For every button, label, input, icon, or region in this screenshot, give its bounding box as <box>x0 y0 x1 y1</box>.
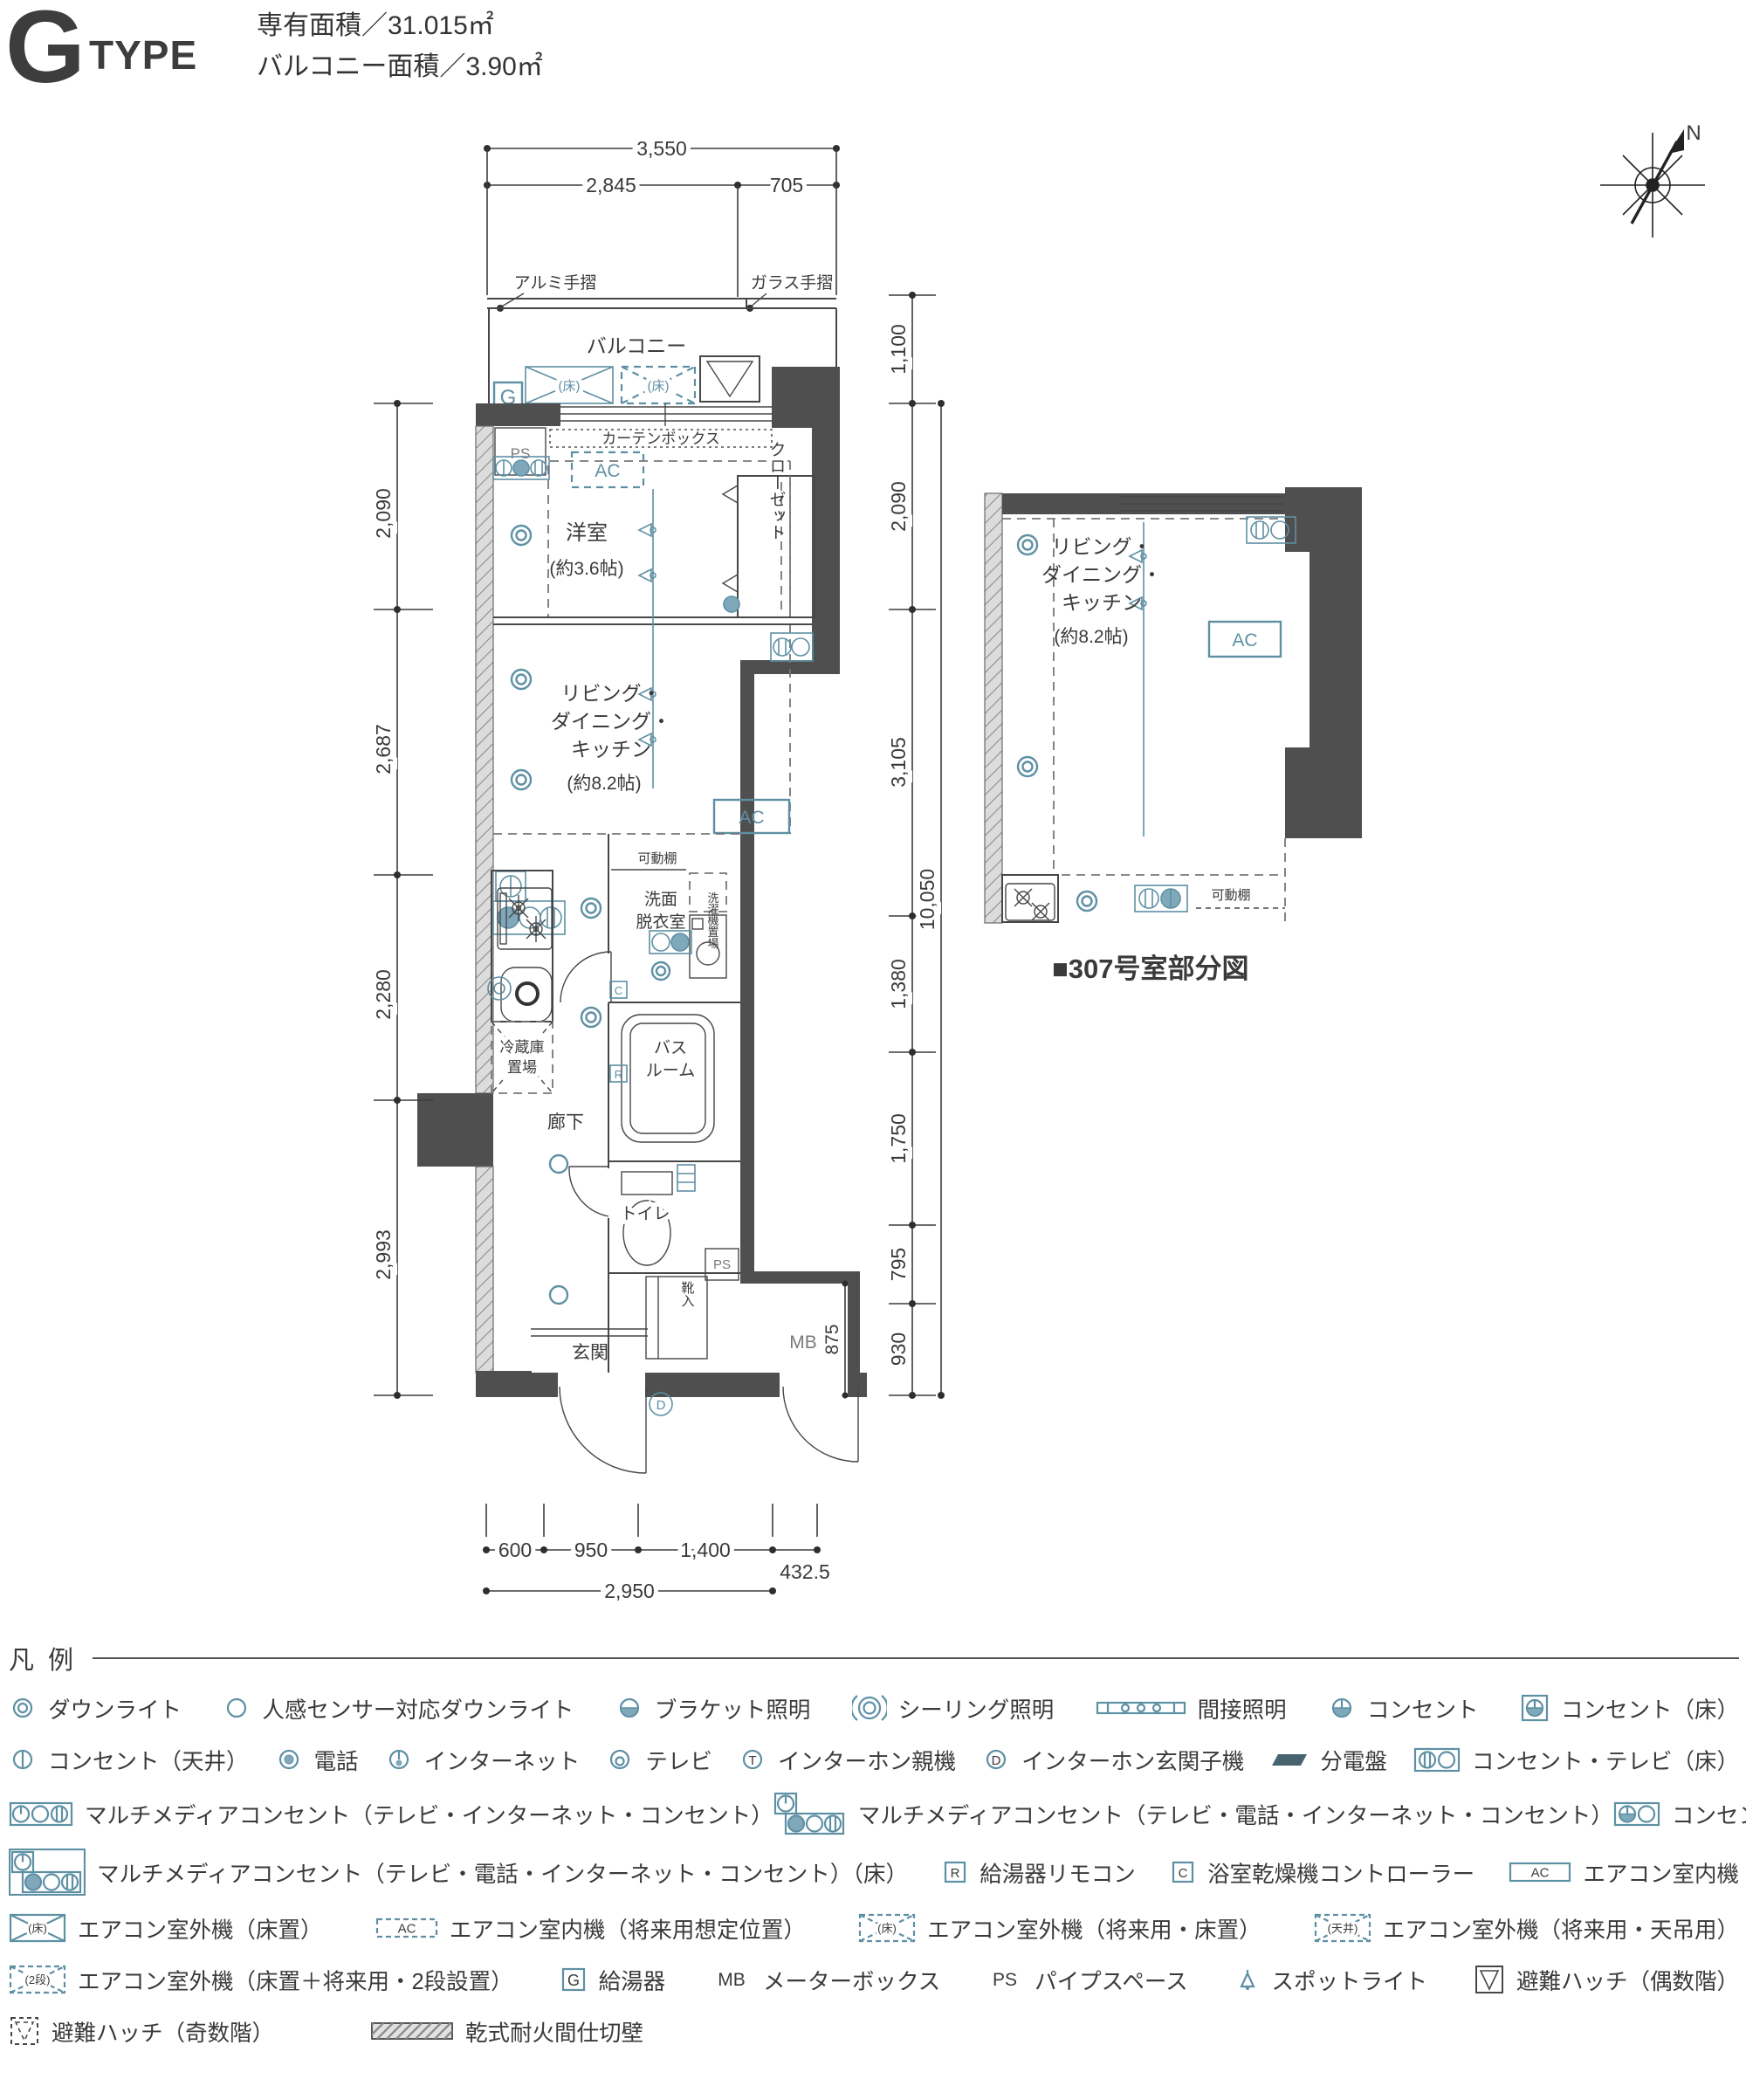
legend-item-label: スポットライト <box>1272 1964 1428 1996</box>
svg-text:(2段): (2段) <box>25 1973 51 1986</box>
compass-icon: N <box>1600 121 1705 238</box>
label-partial-shelf: 可動棚 <box>1211 888 1250 903</box>
legend-item-ps: PSパイプスペース <box>986 1964 1187 1996</box>
label-fridge-2: 置場 <box>507 1059 537 1076</box>
ac-outdoor-future-icon: (床) <box>622 367 695 403</box>
label-movable-shelf: 可動棚 <box>637 851 677 866</box>
svg-text:R: R <box>951 1866 960 1881</box>
multimedia-outlet-icon <box>493 871 565 934</box>
mm4-floor-icon <box>9 1849 86 1896</box>
downlight-icon <box>652 962 670 980</box>
legend-item-spotlight: スポットライト <box>1234 1964 1428 1996</box>
corridor: 廊下 <box>547 1112 584 1304</box>
multimedia-outlet-icon <box>1135 885 1187 912</box>
svg-text:AC: AC <box>1531 1866 1550 1881</box>
dim-right-4: 1,750 <box>887 1113 910 1164</box>
legend-item-label: コンセント・テレビ <box>1672 1798 1746 1830</box>
label-ldk-1: リビング・ <box>561 682 662 705</box>
legend-item-label: コンセント（天井） <box>48 1744 249 1776</box>
svg-text:(床): (床) <box>877 1922 897 1935</box>
dim-bottom-3: 1,400 <box>680 1539 731 1561</box>
legend-item-label: 間接照明 <box>1198 1692 1287 1725</box>
label-ac-western: AC <box>595 461 620 481</box>
legend-item-outlet-tv-floor: コンセント・テレビ（床） <box>1413 1744 1739 1776</box>
dim-right-5: 795 <box>887 1248 910 1281</box>
legend-item-label: インターホン親機 <box>778 1744 956 1776</box>
legend-item-sensor-downlight: 人感センサー対応ダウンライト <box>223 1692 574 1725</box>
legend-item-tv: テレビ <box>606 1744 712 1776</box>
compass-n-label: N <box>1686 121 1701 145</box>
dim-right-inner: 875 <box>822 1324 842 1354</box>
legend-item-label: インターホン玄関子機 <box>1021 1744 1244 1776</box>
legend-item-label: 人感センサー対応ダウンライト <box>262 1692 574 1725</box>
legend-item-indirect: 間接照明 <box>1096 1692 1287 1725</box>
downlight-icon <box>512 526 531 545</box>
downlight-icon <box>512 670 531 689</box>
legend-item-label: コンセント（床） <box>1561 1692 1739 1725</box>
legend-item-label: 給湯器リモコン <box>980 1856 1136 1889</box>
legend-item-label: エアコン室外機（床置＋将来用・2段設置） <box>78 1964 513 1996</box>
legend-item-outlet: コンセント <box>1328 1692 1479 1725</box>
label-partial-ldk-3: キッチン <box>1062 591 1142 614</box>
boiler-icon: G <box>560 1966 588 1993</box>
closet: クローゼット <box>723 441 815 617</box>
legend-item-ac-outdoor-future-ceiling: (天井)エアコン室外機（将来用・天吊用） <box>1314 1912 1739 1945</box>
downlight-icon <box>1077 892 1096 911</box>
legend-row: 避難ハッチ（奇数階）乾式耐火間仕切壁 <box>9 2012 1739 2050</box>
fridge-space: 冷蔵庫 置場 <box>491 1022 553 1093</box>
legend-row: マルチメディアコンセント（テレビ・インターネット・コンセント）マルチメディアコン… <box>9 1792 1739 1835</box>
label-western-room: 洋室 <box>566 521 608 545</box>
label-aluminum-rail: アルミ手摺 <box>514 273 597 293</box>
svg-text:(床): (床) <box>648 379 670 394</box>
dims-top: 3,550 2,845 705 <box>484 137 840 297</box>
mb-icon: MB <box>711 1966 752 1993</box>
faucet-icons <box>650 931 691 954</box>
label-ac-ldk: AC <box>739 808 764 828</box>
legend-item-label: エアコン室外機（将来用・床置） <box>927 1912 1261 1945</box>
dim-right-6: 930 <box>887 1332 910 1366</box>
svg-text:PS: PS <box>993 1970 1017 1990</box>
washlet-remote-icon <box>677 1165 695 1191</box>
dims-bottom: 600 950 1,400 432.5 2,950 <box>483 1504 830 1602</box>
legend-item-label: シーリング照明 <box>898 1692 1055 1725</box>
outlet-ceiling-icon <box>9 1745 37 1773</box>
dim-bottom-2: 950 <box>574 1539 608 1561</box>
outlet-tv-icon <box>1613 1800 1660 1828</box>
legend-item-mm4-floor: マルチメディアコンセント（テレビ・電話・インターネット・コンセント）（床） <box>9 1849 908 1896</box>
label-ldk-size: (約8.2帖) <box>567 774 641 794</box>
label-balcony: バルコニー <box>587 334 687 357</box>
label-curtain-box: カーテンボックス <box>601 430 720 447</box>
bathroom: R バス ルーム <box>608 1002 740 1161</box>
legend-item-intercom-door: Dインターホン玄関子機 <box>982 1744 1244 1776</box>
legend-item-label: エアコン室外機（床置） <box>78 1912 323 1945</box>
dim-bottom-4: 432.5 <box>780 1560 830 1583</box>
label-ldk-3: キッチン <box>571 738 651 761</box>
ac-indoor-icon: AC <box>1509 1860 1571 1884</box>
shoe-cabinet: 靴入 <box>646 1277 707 1359</box>
svg-text:(床): (床) <box>559 379 581 394</box>
panel-icon <box>1270 1748 1309 1771</box>
dim-bottom-1: 600 <box>498 1539 532 1561</box>
downlight-icon <box>581 899 601 918</box>
legend-item-outlet-tv: コンセント・テレビ <box>1613 1798 1746 1830</box>
legend-item-phone: 電話 <box>275 1744 359 1776</box>
internet-icon <box>385 1745 413 1773</box>
hatch-odd-icon <box>9 2015 40 2047</box>
dim-right-2: 3,105 <box>887 737 910 788</box>
mm4-icon <box>773 1792 847 1835</box>
floorplan-page: { "header": { "type_letter": "G", "type_… <box>0 0 1746 2100</box>
ps-icon: PS <box>986 1966 1023 1993</box>
dim-bottom-total: 2,950 <box>604 1580 655 1602</box>
walls <box>417 367 867 1397</box>
multimedia-outlet-icon <box>493 457 549 479</box>
dim-top-right: 705 <box>770 174 803 196</box>
partial-plan-caption: ■307号室部分図 <box>1052 954 1248 984</box>
label-ldk-2: ダイニング・ <box>551 710 671 733</box>
legend-item-remote-r: R給湯器リモコン <box>942 1856 1136 1889</box>
firewall-icon <box>370 2020 454 2042</box>
legend-item-label: テレビ <box>645 1744 712 1776</box>
legend-item-bracket: ブラケット照明 <box>615 1692 811 1725</box>
legend-item-internet: インターネット <box>385 1744 581 1776</box>
label-partial-ac: AC <box>1232 630 1257 651</box>
legend-item-label: 浴室乾燥機コントローラー <box>1207 1856 1474 1889</box>
mm3-icon <box>9 1800 73 1828</box>
legend-item-hatch-even: 避難ハッチ（偶数階） <box>1474 1964 1739 1996</box>
bracket-icon <box>615 1694 643 1722</box>
sink-icon <box>488 967 552 1022</box>
outlet-floor-icon <box>1520 1693 1550 1723</box>
label-western-size: (約3.6帖) <box>549 559 623 579</box>
legend-item-label: インターネット <box>424 1744 581 1776</box>
legend-item-remote-c: C浴室乾燥機コントローラー <box>1170 1856 1474 1889</box>
dim-left-3: 2,280 <box>372 969 395 1020</box>
label-washroom-1: 洗面 <box>644 890 677 909</box>
legend-item-label: ダウンライト <box>48 1692 182 1725</box>
legend-item-mb: MBメーターボックス <box>711 1964 940 1996</box>
ac-outdoor-future-ceiling-icon: (天井) <box>1314 1913 1371 1943</box>
legend-row: ダウンライト人感センサー対応ダウンライトブラケット照明シーリング照明間接照明コン… <box>9 1689 1739 1727</box>
legend-item-panel: 分電盤 <box>1270 1744 1387 1776</box>
ac-outdoor-future-floor-icon: (床) <box>858 1913 916 1943</box>
legend-item-label: エアコン室外機（将来用・天吊用） <box>1383 1912 1739 1945</box>
downlight-icon <box>512 770 531 789</box>
ceiling-light-icon <box>852 1692 887 1724</box>
legend-item-label: コンセント <box>1367 1692 1479 1725</box>
legend-item-hatch-odd: 避難ハッチ（奇数階） <box>9 2015 274 2048</box>
svg-text:D: D <box>992 1753 1001 1768</box>
intercom-door-icon: D <box>982 1745 1010 1773</box>
intercom-main-icon: T <box>739 1745 766 1773</box>
legend-item-label: エアコン室内機 <box>1583 1856 1739 1889</box>
legend-item-outlet-ceiling: コンセント（天井） <box>9 1744 249 1776</box>
legend-row: (2段)エアコン室外機（床置＋将来用・2段設置）G給湯器MBメーターボックスPS… <box>9 1960 1739 1999</box>
dim-left-1: 2,090 <box>372 488 395 539</box>
label-bath-1: バス <box>654 1039 687 1057</box>
outlet-tv-icon <box>771 633 813 661</box>
label-partial-ldk-size: (約8.2帖) <box>1054 627 1128 647</box>
svg-text:C: C <box>1179 1866 1188 1881</box>
legend-item-label: エアコン室内機（将来用想定位置） <box>450 1912 806 1945</box>
svg-text:D: D <box>656 1398 666 1413</box>
sensor-downlight-icon <box>550 1155 567 1173</box>
dim-left-2: 2,687 <box>372 724 395 775</box>
dims-left: 2,090 2,687 2,280 2,993 <box>372 400 433 1399</box>
legend-item-ac-outdoor-2dan: (2段)エアコン室外機（床置＋将来用・2段設置） <box>9 1964 513 1996</box>
label-bath-2: ルーム <box>646 1062 695 1080</box>
legend-rows: ダウンライト人感センサー対応ダウンライトブラケット照明シーリング照明間接照明コン… <box>9 1689 1739 2050</box>
label-partial-ldk-2: ダイニング・ <box>1041 563 1162 586</box>
legend-item-label: 避難ハッチ（奇数階） <box>52 2015 274 2048</box>
svg-text:T: T <box>748 1753 756 1768</box>
legend-item-boiler: G給湯器 <box>560 1964 666 1996</box>
label-mb: MB <box>789 1332 817 1353</box>
label-partial-ldk-1: リビング・ <box>1052 535 1152 558</box>
dim-right-total: 10,050 <box>916 869 938 930</box>
outlet-tv-floor-icon <box>1413 1745 1461 1773</box>
downlight-icon <box>581 1008 601 1027</box>
legend-item-intercom-main: Tインターホン親機 <box>739 1744 956 1776</box>
legend-item-label: マルチメディアコンセント（テレビ・電話・インターネット・コンセント）（床） <box>97 1856 908 1889</box>
legend-item-label: コンセント・テレビ（床） <box>1472 1744 1739 1776</box>
partial-plan-307: リビング・ ダイニング・ キッチン (約8.2帖) AC 可動棚 ■307号室部… <box>985 487 1362 984</box>
label-shoe-cabinet: 靴入 <box>680 1281 695 1307</box>
dryer-controller-icon: C <box>615 984 622 997</box>
dim-top-total: 3,550 <box>636 137 687 160</box>
label-glass-rail: ガラス手摺 <box>751 273 834 293</box>
tv-icon <box>606 1745 634 1773</box>
legend-item-label: パイプスペース <box>1035 1964 1187 1996</box>
legend-item-label: 乾式耐火間仕切壁 <box>465 2015 643 2048</box>
downlight-icon <box>1018 757 1037 776</box>
legend-item-ac-indoor: ACエアコン室内機 <box>1509 1856 1739 1889</box>
indirect-icon <box>1096 1697 1186 1719</box>
svg-text:(床): (床) <box>28 1922 47 1935</box>
label-ps-lower: PS <box>713 1257 731 1272</box>
legend: 凡 例 ダウンライト人感センサー対応ダウンライトブラケット照明シーリング照明間接… <box>9 1640 1739 2063</box>
svg-text:MB: MB <box>718 1970 746 1990</box>
legend-item-label: 分電盤 <box>1320 1744 1387 1776</box>
legend-item-ceiling-light: シーリング照明 <box>852 1692 1055 1725</box>
dim-right-3: 1,380 <box>887 959 910 1009</box>
legend-item-label: 避難ハッチ（偶数階） <box>1516 1964 1739 1996</box>
label-closet: クローゼット <box>767 441 786 540</box>
label-entrance: 玄関 <box>572 1343 608 1363</box>
label-fridge-1: 冷蔵庫 <box>500 1039 545 1056</box>
legend-item-label: 電話 <box>314 1744 359 1776</box>
remote-c-icon: C <box>1170 1859 1196 1885</box>
downlight-icon <box>9 1694 37 1722</box>
dims-right: 1,100 2,090 3,105 1,380 1,750 795 930 10… <box>822 292 945 1399</box>
phone-icon <box>275 1745 303 1773</box>
downlight-icon <box>1018 535 1037 554</box>
legend-item-mm3: マルチメディアコンセント（テレビ・インターネット・コンセント） <box>9 1798 773 1830</box>
label-washroom-2: 脱衣室 <box>636 912 685 932</box>
dim-right-balcony: 1,100 <box>887 324 910 375</box>
legend-item-label: マルチメディアコンセント（テレビ・インターネット・コンセント） <box>85 1798 773 1830</box>
ac-outdoor-2dan-icon: (2段) <box>9 1965 66 1994</box>
label-washer: 洗濯機置場 <box>706 892 719 949</box>
escape-hatch-icon <box>700 356 760 402</box>
dim-top-left: 2,845 <box>586 174 636 196</box>
legend-item-label: 給湯器 <box>599 1964 666 1996</box>
legend-item-outlet-floor: コンセント（床） <box>1520 1692 1739 1725</box>
ac-outdoor-unit-icon: (床) <box>526 367 613 403</box>
legend-item-firewall: 乾式耐火間仕切壁 <box>370 2015 643 2048</box>
boiler-remote-icon: R <box>615 1068 622 1081</box>
hatch-even-icon <box>1474 1964 1505 1995</box>
legend-item-downlight: ダウンライト <box>9 1692 182 1725</box>
legend-row: コンセント（天井）電話インターネットテレビTインターホン親機Dインターホン玄関子… <box>9 1740 1739 1779</box>
label-ps: PS <box>511 445 531 462</box>
spotlight-icon <box>1234 1966 1261 1993</box>
label-toilet: トイレ <box>620 1205 670 1223</box>
legend-item-ac-indoor-future: ACエアコン室内機（将来用想定位置） <box>375 1912 806 1945</box>
svg-text:G: G <box>567 1972 580 1989</box>
legend-row: マルチメディアコンセント（テレビ・電話・インターネット・コンセント）（床）R給湯… <box>9 1849 1739 1896</box>
sensor-downlight-icon <box>550 1286 567 1304</box>
legend-title: 凡 例 <box>9 1640 77 1677</box>
legend-rule <box>93 1657 1739 1659</box>
legend-item-label: マルチメディアコンセント（テレビ・電話・インターネット・コンセント） <box>858 1798 1613 1830</box>
dim-right-1: 2,090 <box>887 481 910 532</box>
legend-item-label: メーターボックス <box>763 1964 940 1996</box>
remote-r-icon: R <box>942 1859 968 1885</box>
legend-item-mm4: マルチメディアコンセント（テレビ・電話・インターネット・コンセント） <box>773 1792 1613 1835</box>
sensor-downlight-icon <box>223 1694 251 1722</box>
room-western: PS カーテンボックス AC クローゼット 洋室 (約3.6帖) <box>493 428 815 834</box>
legend-item-ac-outdoor: (床)エアコン室外機（床置） <box>9 1912 323 1945</box>
floor-plan-drawing: N 3,550 2,845 705 アルミ手摺 ガラス手摺 バルコニー G (床… <box>0 0 1746 1633</box>
label-corridor: 廊下 <box>547 1112 584 1133</box>
legend-item-label: ブラケット照明 <box>655 1692 811 1725</box>
ac-outdoor-icon: (床) <box>9 1913 66 1943</box>
legend-row: (床)エアコン室外機（床置）ACエアコン室内機（将来用想定位置）(床)エアコン室… <box>9 1909 1739 1947</box>
svg-text:(天井): (天井) <box>1328 1922 1358 1935</box>
ac-indoor-future-icon: AC <box>375 1916 438 1940</box>
legend-item-ac-outdoor-future-floor: (床)エアコン室外機（将来用・床置） <box>858 1912 1261 1945</box>
legend-header: 凡 例 <box>9 1640 1739 1677</box>
dim-left-4: 2,993 <box>372 1229 395 1280</box>
outlet-icon <box>1328 1694 1356 1722</box>
svg-text:AC: AC <box>397 1922 416 1937</box>
